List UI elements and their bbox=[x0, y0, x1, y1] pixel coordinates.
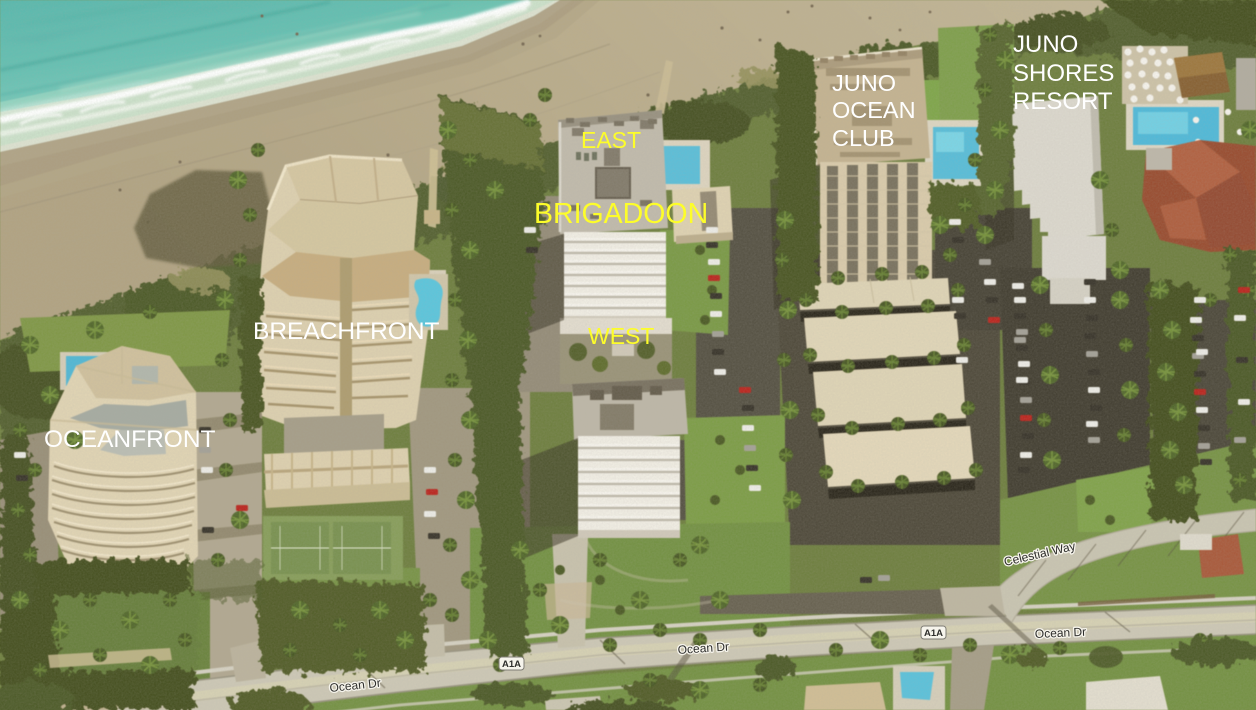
svg-text:RESORT: RESORT bbox=[1013, 88, 1113, 115]
svg-text:JUNO: JUNO bbox=[832, 70, 896, 96]
svg-text:SHORES: SHORES bbox=[1013, 60, 1114, 87]
svg-text:A1A: A1A bbox=[924, 628, 943, 639]
svg-text:Ocean Dr: Ocean Dr bbox=[1035, 625, 1087, 641]
svg-text:JUNO: JUNO bbox=[1013, 31, 1078, 58]
svg-text:CLUB: CLUB bbox=[832, 125, 895, 151]
svg-text:A1A: A1A bbox=[502, 659, 521, 670]
svg-text:WEST: WEST bbox=[588, 323, 654, 349]
svg-text:OCEAN: OCEAN bbox=[832, 97, 916, 123]
svg-text:EAST: EAST bbox=[581, 127, 641, 153]
svg-text:OCEANFRONT: OCEANFRONT bbox=[44, 426, 216, 453]
svg-text:BREACHFRONT: BREACHFRONT bbox=[253, 318, 440, 345]
svg-text:BRIGADOON: BRIGADOON bbox=[534, 198, 708, 230]
